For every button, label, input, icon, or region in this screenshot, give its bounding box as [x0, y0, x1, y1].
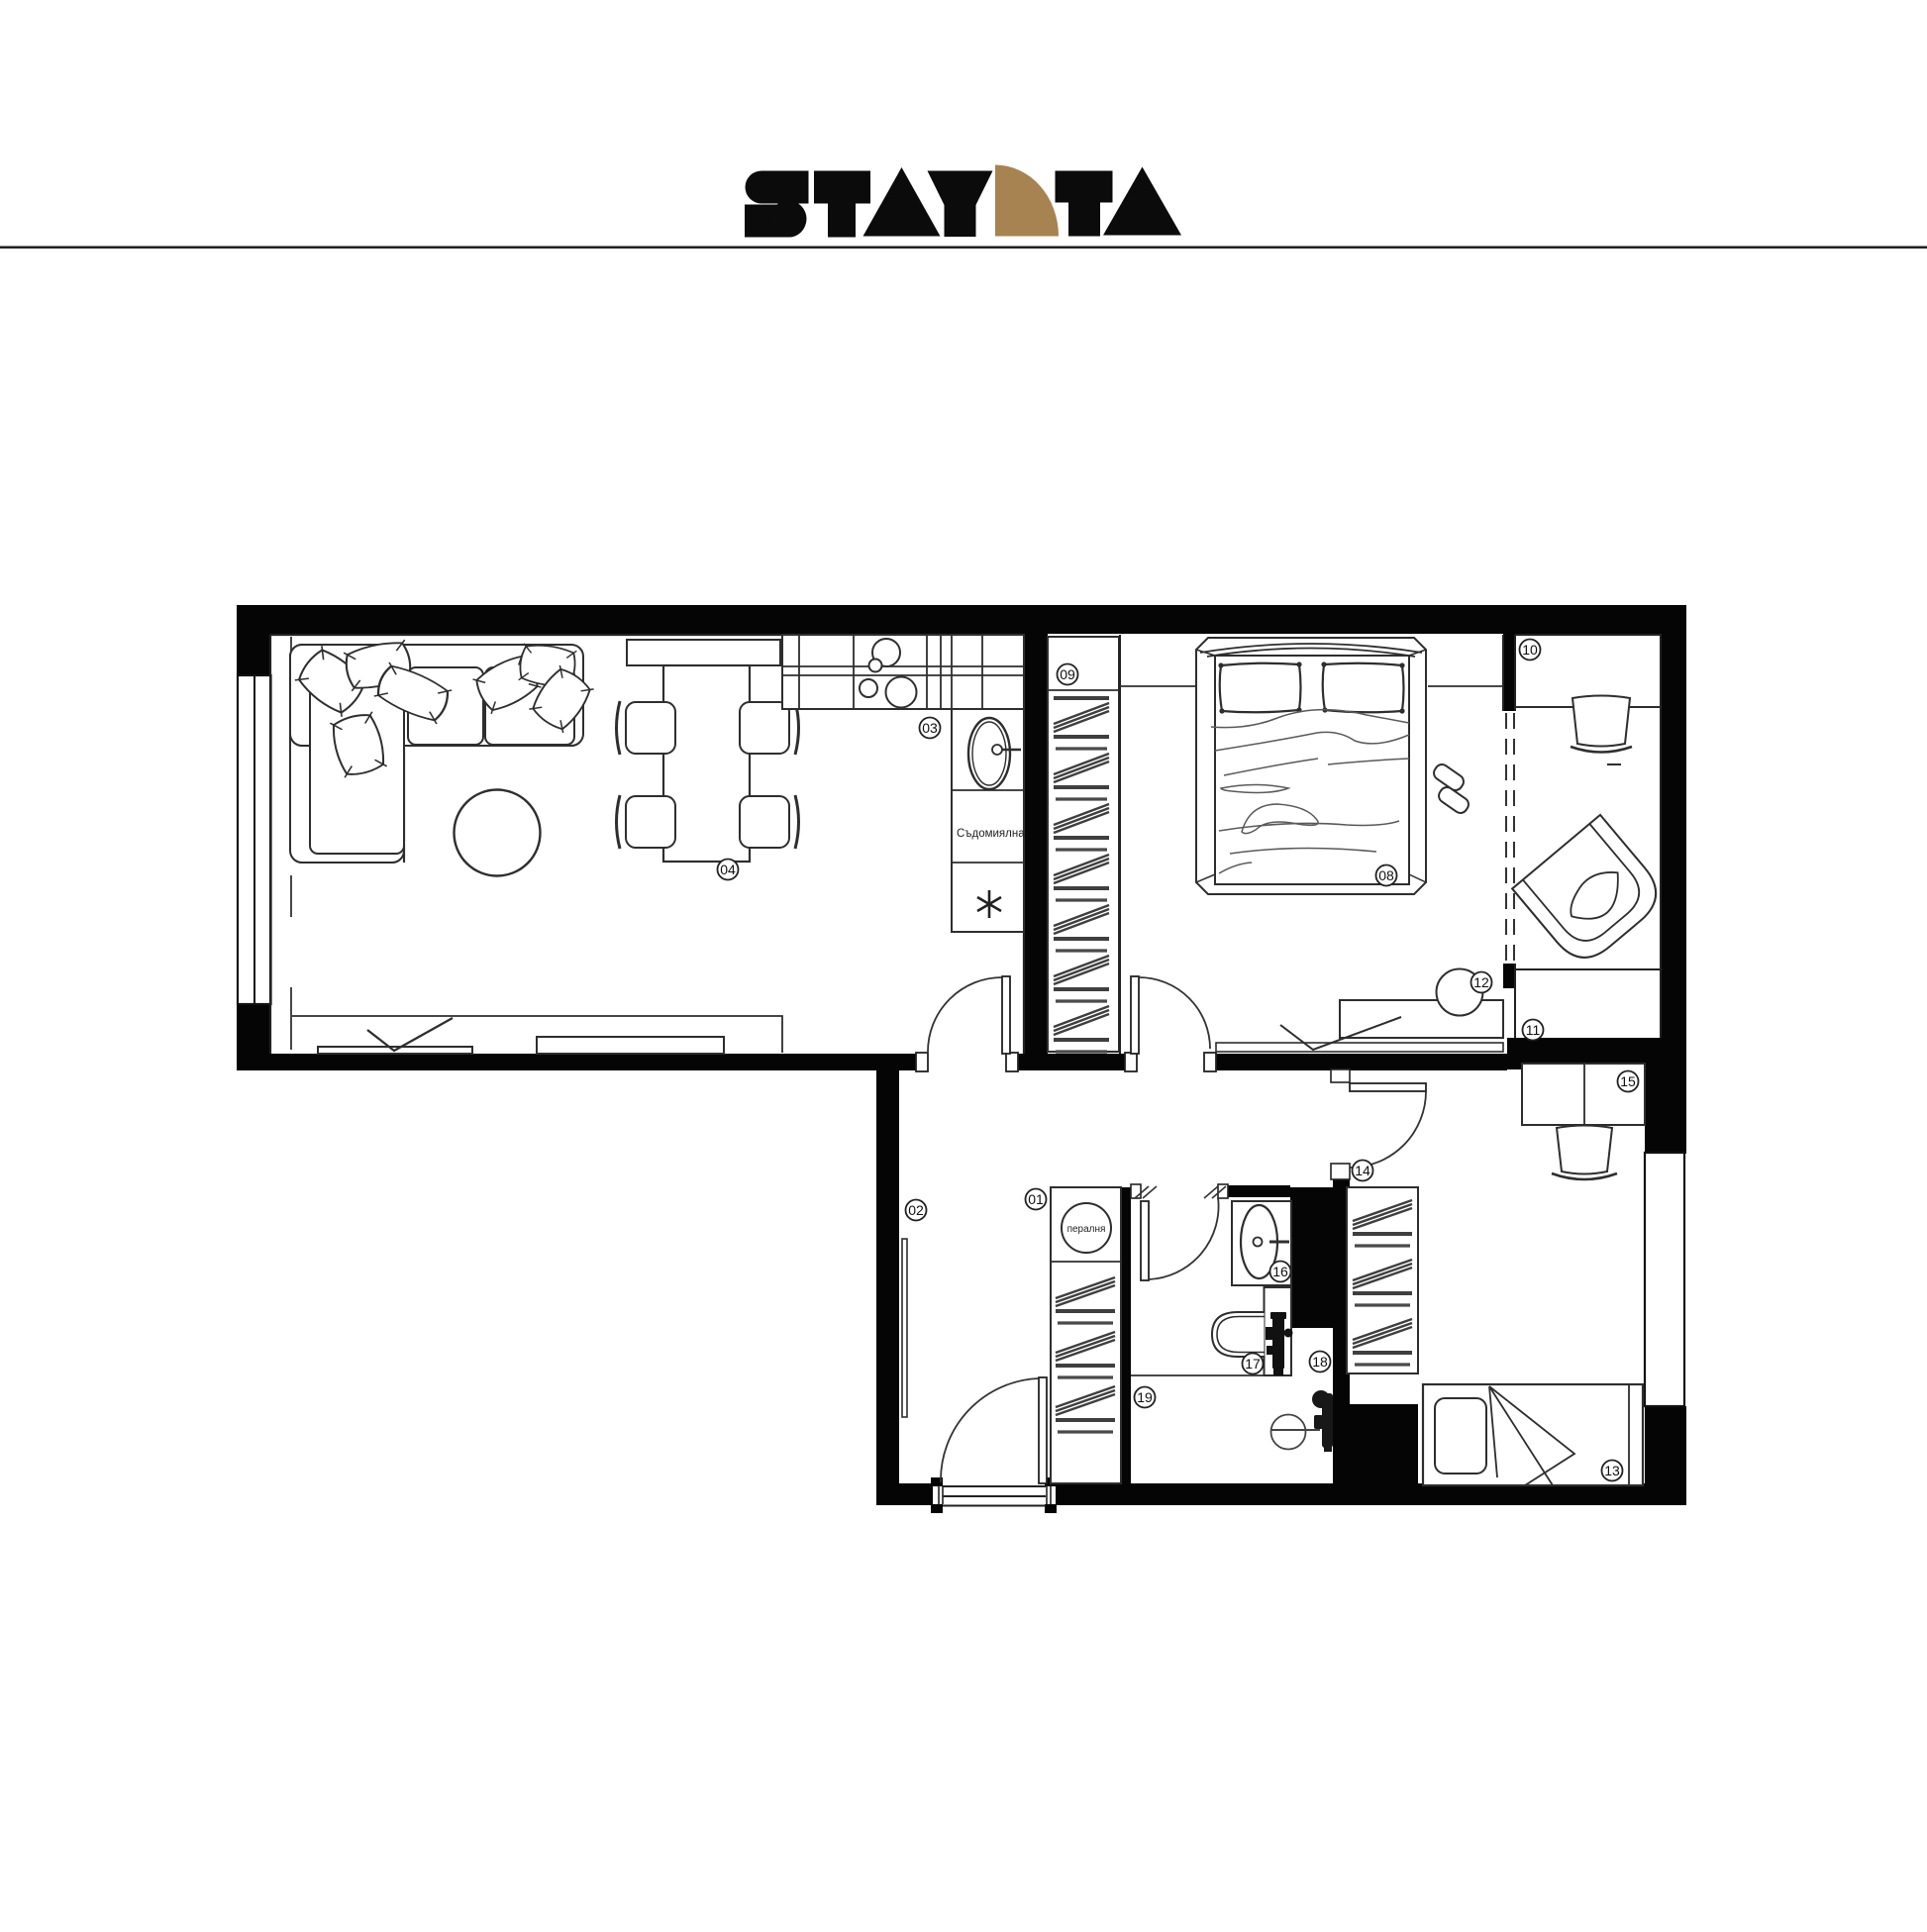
- svg-text:09: 09: [1060, 666, 1075, 682]
- svg-text:02: 02: [908, 1202, 924, 1218]
- svg-text:14: 14: [1355, 1163, 1370, 1178]
- svg-text:11: 11: [1526, 1022, 1541, 1038]
- svg-text:18: 18: [1312, 1354, 1328, 1370]
- svg-text:03: 03: [922, 720, 938, 736]
- svg-text:04: 04: [720, 862, 736, 877]
- svg-text:16: 16: [1272, 1264, 1288, 1279]
- svg-text:17: 17: [1245, 1356, 1261, 1372]
- svg-text:12: 12: [1473, 974, 1489, 990]
- svg-text:13: 13: [1604, 1463, 1620, 1478]
- svg-text:Съдомиялна: Съдомиялна: [957, 828, 1025, 840]
- svg-text:10: 10: [1522, 642, 1538, 658]
- svg-text:15: 15: [1620, 1073, 1636, 1089]
- svg-text:01: 01: [1028, 1191, 1044, 1207]
- svg-text:пералня: пералня: [1067, 1224, 1106, 1235]
- svg-text:19: 19: [1137, 1389, 1153, 1405]
- svg-text:08: 08: [1378, 867, 1394, 883]
